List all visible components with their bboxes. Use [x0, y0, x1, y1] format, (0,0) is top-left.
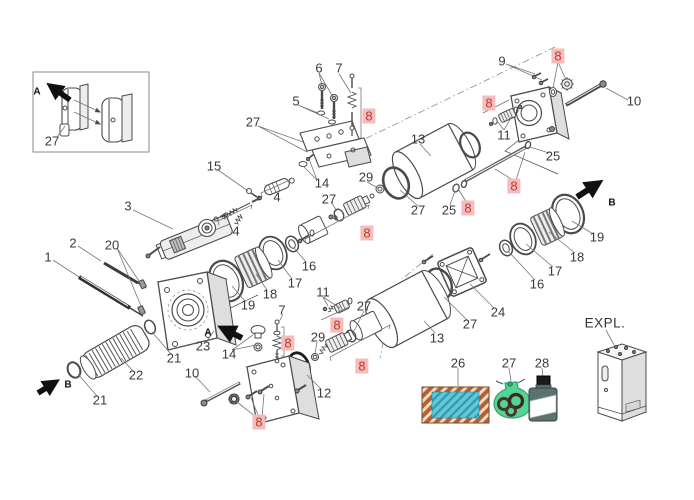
- highlighted-part-label-8: 8: [355, 359, 368, 374]
- direction-letter-A: A: [33, 87, 40, 98]
- part-label-17: 17: [548, 265, 562, 278]
- part-label-EXPL.: EXPL.: [585, 316, 626, 330]
- part-label-25: 25: [546, 150, 560, 163]
- part-label-13: 13: [411, 133, 425, 146]
- part-label-19: 19: [590, 231, 604, 244]
- part-label-27: 27: [45, 135, 59, 148]
- part-label-16: 16: [302, 260, 316, 273]
- part-label-17: 17: [288, 277, 302, 290]
- part-label-16: 16: [530, 278, 544, 291]
- part-label-6: 6: [315, 62, 322, 75]
- part-label-4: 4: [273, 191, 280, 204]
- part-label-27: 27: [463, 318, 477, 331]
- part-label-27: 27: [246, 116, 260, 129]
- part-label-7: 7: [278, 304, 285, 317]
- part-label-24: 24: [491, 306, 505, 319]
- part-label-27: 27: [357, 300, 371, 313]
- highlighted-part-label-8: 8: [252, 415, 265, 430]
- part-label-22: 22: [129, 369, 143, 382]
- part-label-18: 18: [263, 288, 277, 301]
- labels-layer: 2767527898108112513152914842738252748191…: [0, 0, 694, 500]
- part-label-26: 26: [451, 357, 465, 370]
- part-label-21: 21: [93, 394, 107, 407]
- part-label-3: 3: [124, 200, 131, 213]
- part-label-20: 20: [105, 239, 119, 252]
- part-label-23: 23: [196, 340, 210, 353]
- part-label-15: 15: [207, 160, 221, 173]
- part-label-27: 27: [322, 193, 336, 206]
- part-label-1: 1: [44, 251, 51, 264]
- highlighted-part-label-8: 8: [330, 318, 343, 333]
- part-label-7: 7: [335, 62, 342, 75]
- part-label-9: 9: [498, 55, 505, 68]
- part-label-2: 2: [69, 237, 76, 250]
- direction-letter-B: B: [64, 380, 71, 391]
- highlighted-part-label-8: 8: [507, 179, 520, 194]
- part-label-27: 27: [502, 357, 516, 370]
- direction-letter-A: A: [204, 328, 211, 339]
- part-label-21: 21: [167, 352, 181, 365]
- part-label-29: 29: [311, 331, 325, 344]
- part-label-14: 14: [222, 348, 236, 361]
- highlighted-part-label-8: 8: [482, 96, 495, 111]
- part-label-28: 28: [535, 357, 549, 370]
- part-label-10: 10: [627, 95, 641, 108]
- highlighted-part-label-8: 8: [281, 336, 294, 351]
- highlighted-part-label-8: 8: [360, 226, 373, 241]
- part-label-11: 11: [497, 129, 511, 142]
- direction-letter-B: B: [608, 198, 615, 209]
- part-label-4: 4: [232, 225, 239, 238]
- part-label-14: 14: [315, 177, 329, 190]
- part-label-5: 5: [292, 95, 299, 108]
- part-label-29: 29: [359, 171, 373, 184]
- part-label-13: 13: [430, 332, 444, 345]
- part-label-25: 25: [442, 204, 456, 217]
- exploded-parts-diagram: 2767527898108112513152914842738252748191…: [0, 0, 694, 500]
- highlighted-part-label-8: 8: [461, 201, 474, 216]
- highlighted-part-label-8: 8: [362, 109, 375, 124]
- part-label-27: 27: [411, 204, 425, 217]
- highlighted-part-label-8: 8: [551, 49, 564, 64]
- part-label-19: 19: [241, 299, 255, 312]
- part-label-12: 12: [317, 387, 331, 400]
- part-label-11: 11: [316, 286, 330, 299]
- part-label-10: 10: [185, 367, 199, 380]
- part-label-18: 18: [570, 251, 584, 264]
